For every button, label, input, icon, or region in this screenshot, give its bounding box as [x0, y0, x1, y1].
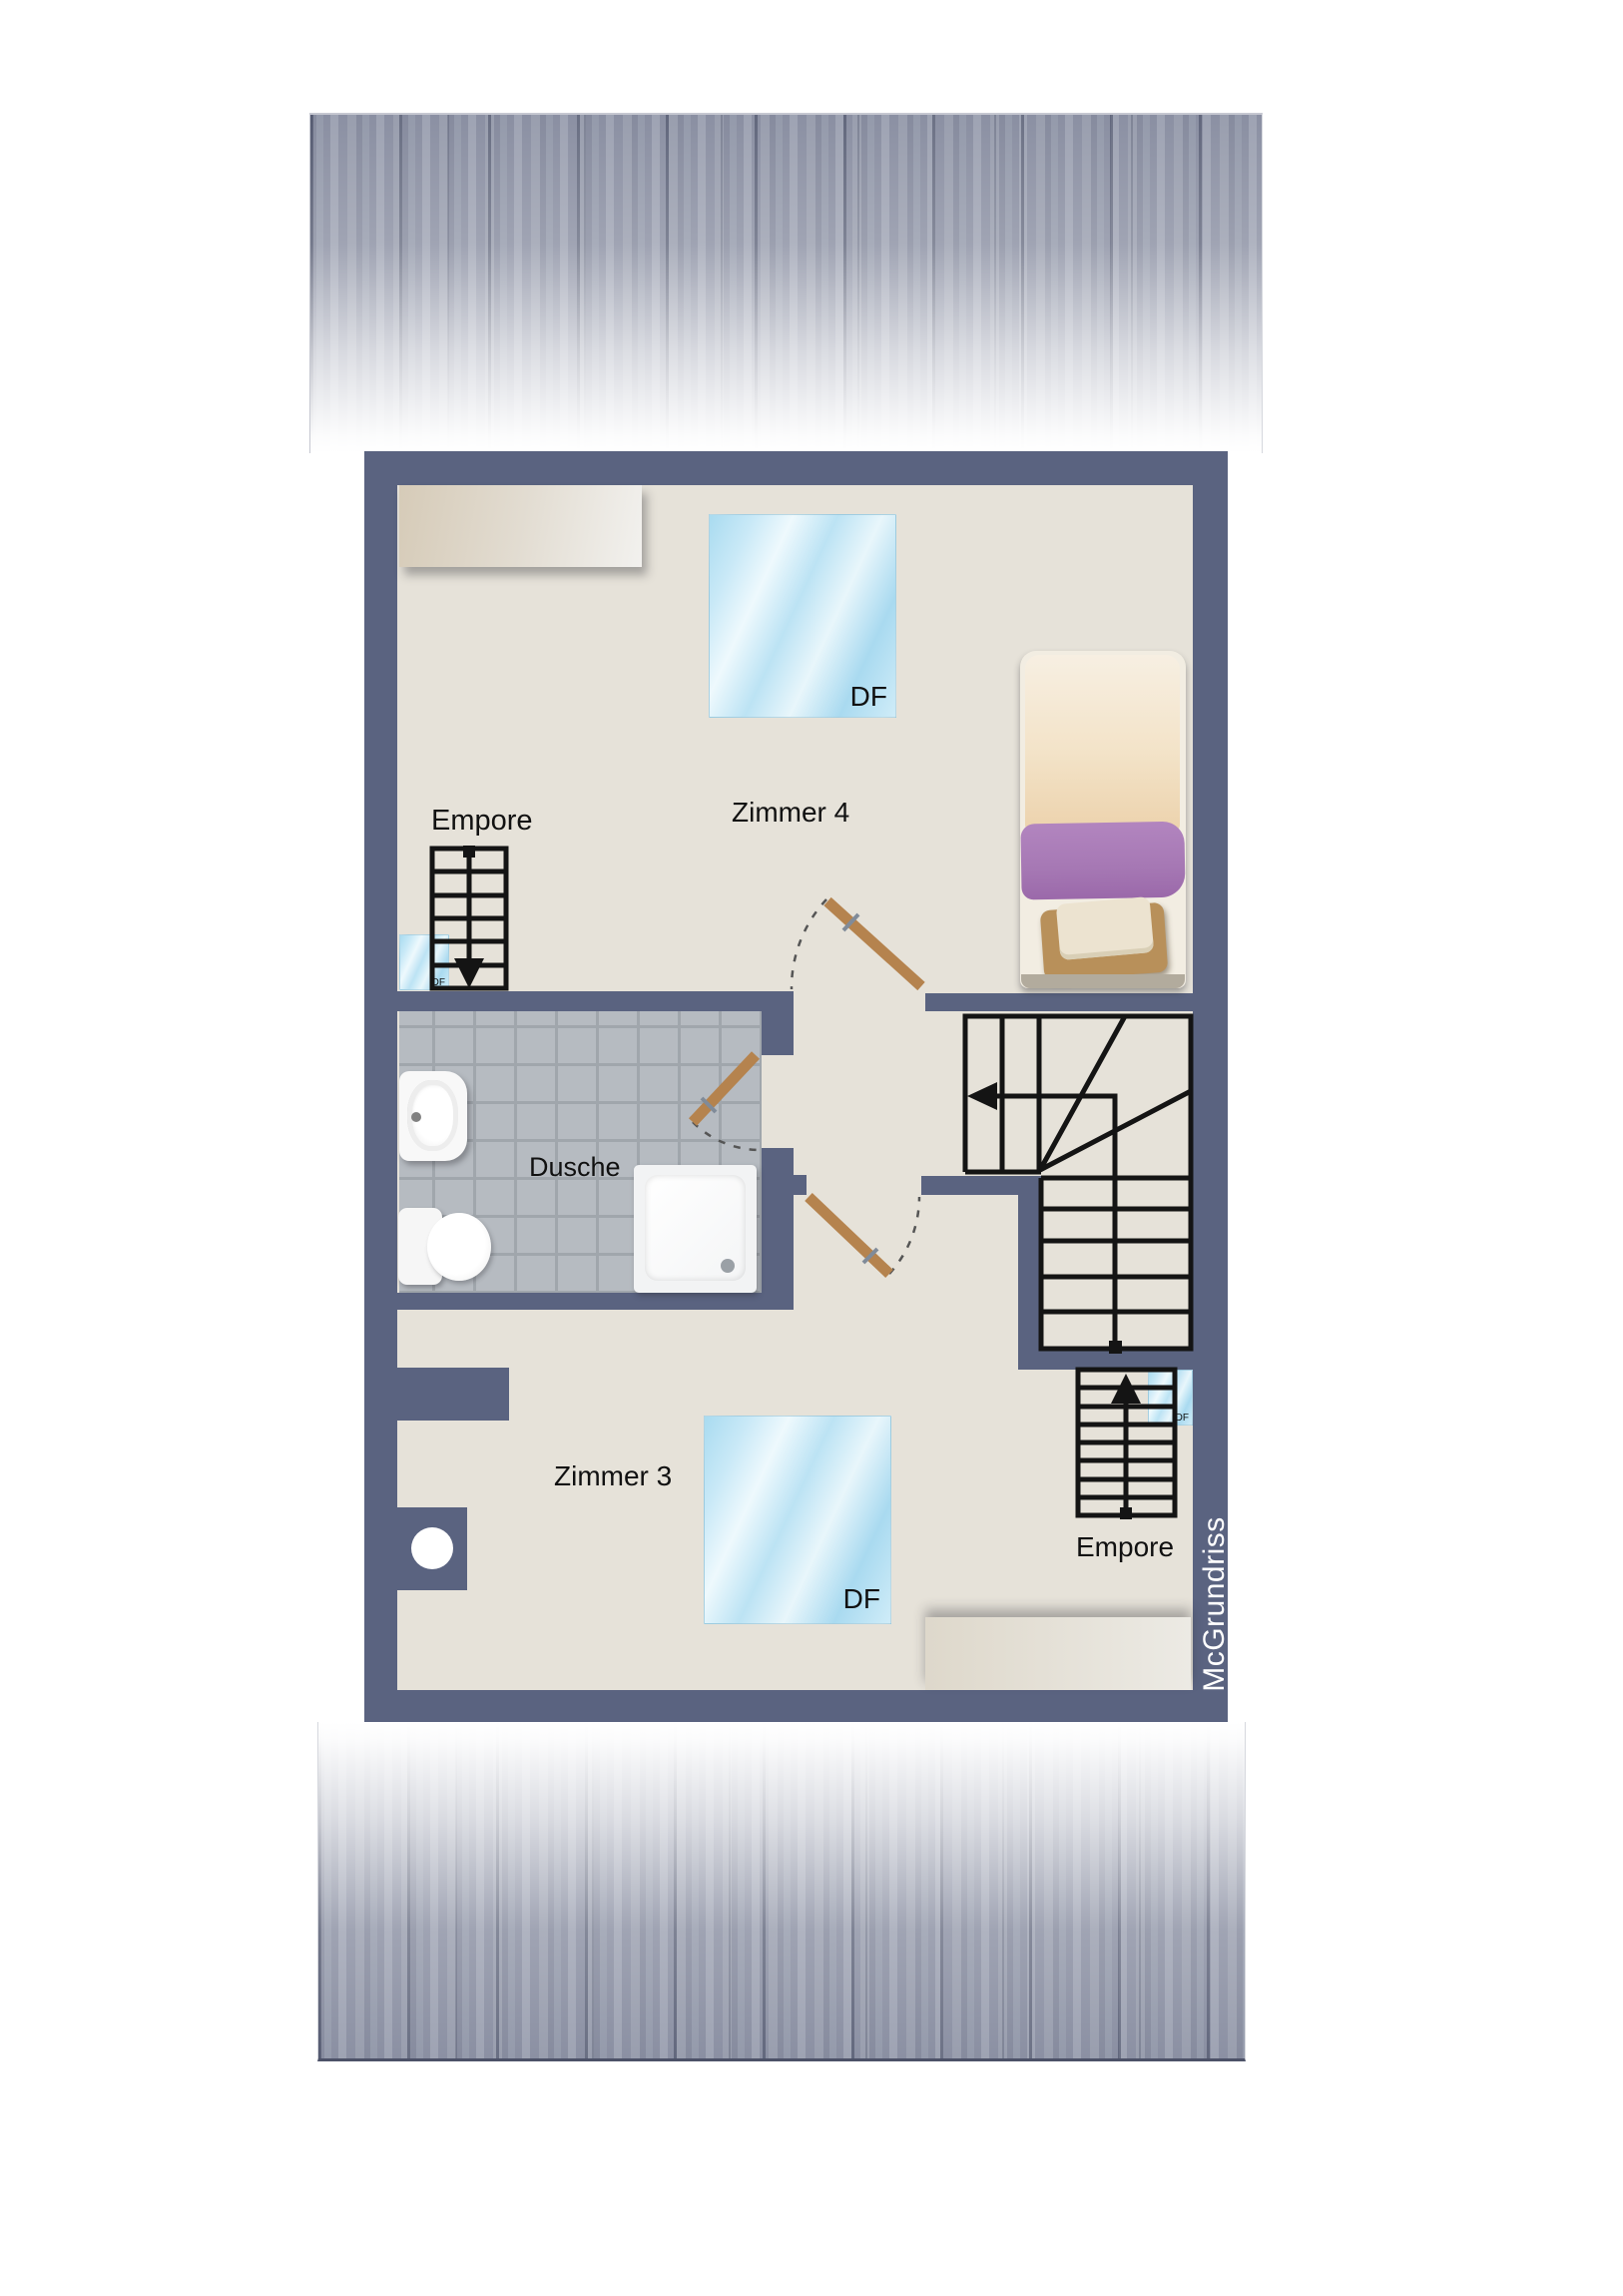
room-label-dusche: Dusche — [529, 1152, 621, 1183]
door-bathroom-leaf — [693, 1055, 756, 1122]
stair-empore-top-start-marker — [463, 846, 475, 858]
room-label-zimmer3: Zimmer 3 — [554, 1460, 672, 1492]
room-label-zimmer4: Zimmer 4 — [732, 797, 849, 829]
stair-empore-top-down-arrow — [454, 958, 484, 988]
room-label-empore-bottom: Empore — [1076, 1531, 1174, 1563]
floorplan: DF DF DF DF — [364, 451, 1228, 1722]
door-zimmer3-swing-arc — [889, 1197, 919, 1274]
door-zimmer4-swing-arc — [792, 899, 826, 989]
door-zimmer3 — [809, 1197, 919, 1274]
roof-texture-top — [309, 113, 1263, 453]
door-bathroom — [693, 1055, 759, 1150]
door-zimmer4-leaf — [827, 901, 921, 986]
stair-empore-bottom-start-marker — [1120, 1507, 1132, 1519]
stair-main-direction-arrow — [967, 1082, 997, 1110]
stair-main-start-marker — [1109, 1341, 1122, 1354]
door-zimmer4 — [792, 899, 921, 989]
watermark-text: McGrundriss — [1198, 1516, 1232, 1692]
door-zimmer3-leaf — [809, 1197, 889, 1274]
roof-texture-bottom — [317, 1722, 1246, 2061]
floorplan-canvas: DF DF DF DF — [0, 0, 1623, 2296]
door-bathroom-swing-arc — [693, 1122, 759, 1150]
stair-main — [965, 1016, 1191, 1349]
room-label-empore-top: Empore — [431, 805, 533, 838]
